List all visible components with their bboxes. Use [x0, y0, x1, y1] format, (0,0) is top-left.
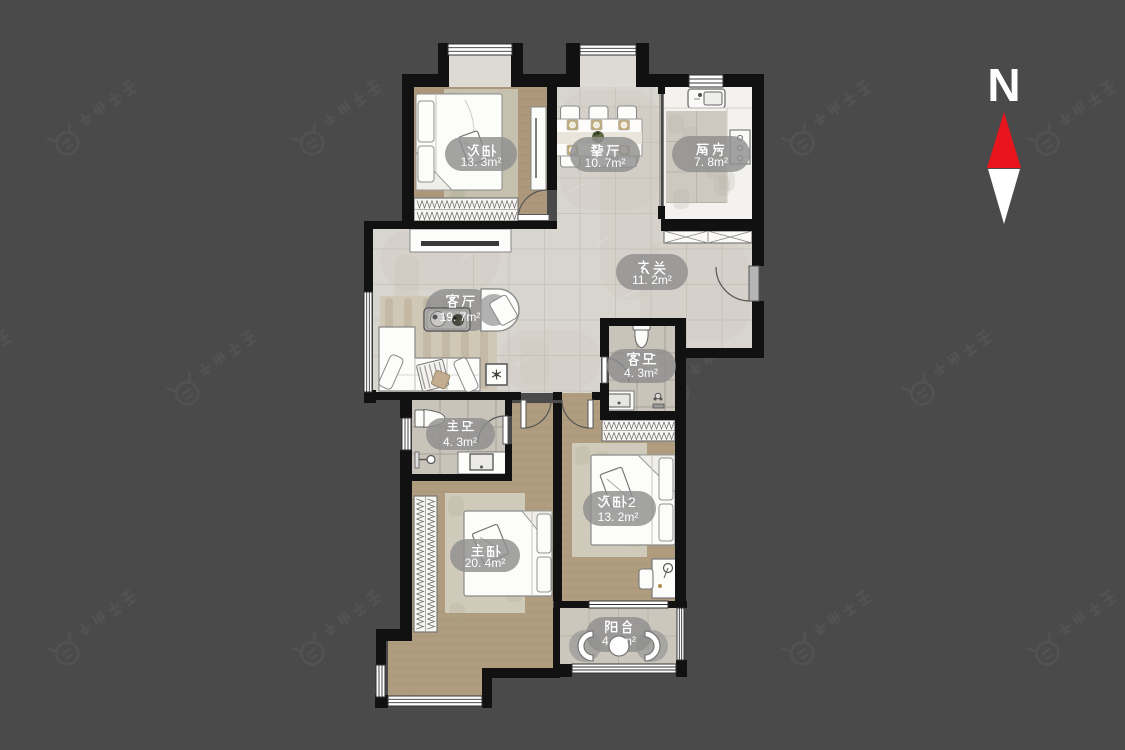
- svg-text:13. 2m²: 13. 2m²: [598, 510, 639, 524]
- svg-text:11. 2m²: 11. 2m²: [632, 273, 672, 287]
- svg-text:4. 3m²: 4. 3m²: [624, 366, 658, 380]
- svg-text:4. 3m²: 4. 3m²: [443, 435, 477, 449]
- svg-text:10. 7m²: 10. 7m²: [585, 156, 626, 170]
- svg-text:4. 1m²: 4. 1m²: [602, 634, 636, 648]
- svg-text:N: N: [987, 59, 1020, 111]
- svg-text:20. 4m²: 20. 4m²: [465, 556, 506, 570]
- svg-text:2: 2: [628, 494, 636, 510]
- svg-text:13. 3m²: 13. 3m²: [461, 155, 502, 169]
- svg-text:19. 7m²: 19. 7m²: [440, 310, 481, 324]
- svg-text:7. 8m²: 7. 8m²: [694, 155, 728, 169]
